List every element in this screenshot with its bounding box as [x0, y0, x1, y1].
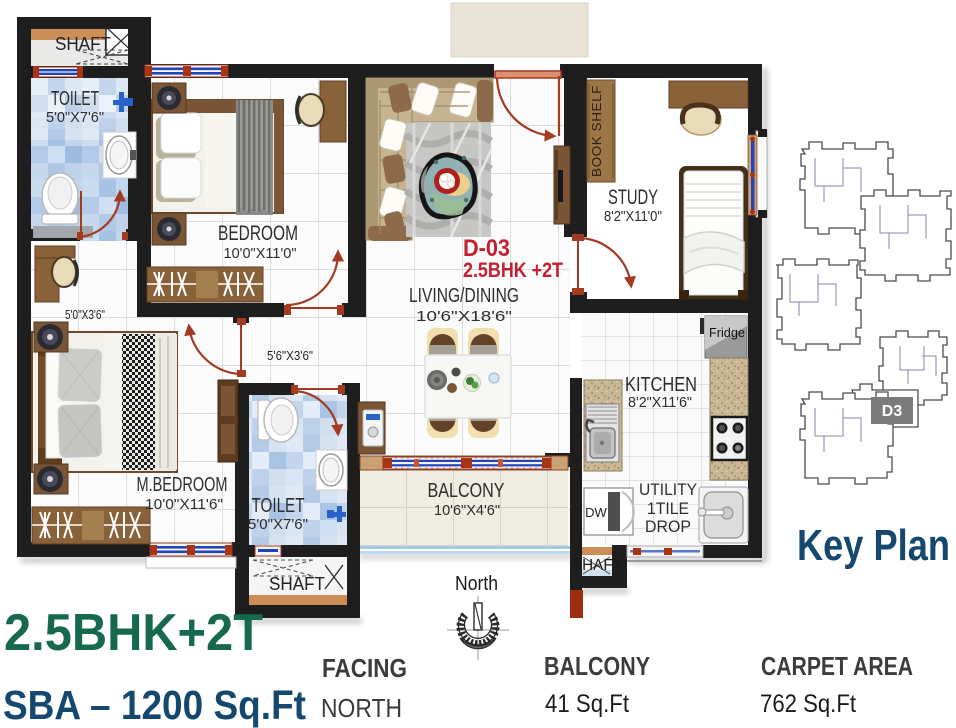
svg-text:2.5BHK +2T: 2.5BHK +2T — [463, 259, 563, 282]
svg-text:8'2"X11'6": 8'2"X11'6" — [628, 394, 692, 411]
svg-text:CARPET AREA: CARPET AREA — [761, 651, 913, 681]
svg-text:2.5BHK+2T: 2.5BHK+2T — [4, 604, 263, 662]
svg-text:STUDY: STUDY — [608, 186, 658, 209]
svg-text:UTILITY: UTILITY — [639, 480, 697, 499]
svg-text:41 Sq.Ft: 41 Sq.Ft — [545, 690, 629, 718]
svg-text:BEDROOM: BEDROOM — [218, 222, 298, 245]
svg-text:DW: DW — [585, 505, 607, 520]
svg-text:SHAFT: SHAFT — [572, 557, 622, 574]
svg-text:10'6"X4'6": 10'6"X4'6" — [434, 502, 500, 519]
svg-text:Fridge: Fridge — [709, 325, 745, 340]
svg-text:5'0"X7'6": 5'0"X7'6" — [46, 109, 104, 126]
svg-text:5'6"X3'6": 5'6"X3'6" — [267, 348, 313, 363]
svg-text:5'0"X3'6": 5'0"X3'6" — [65, 307, 105, 322]
svg-text:10'6"X18'6": 10'6"X18'6" — [416, 308, 512, 325]
svg-text:KITCHEN: KITCHEN — [625, 374, 697, 396]
svg-text:SBA – 1200 Sq.Ft: SBA – 1200 Sq.Ft — [3, 682, 306, 728]
svg-text:BALCONY: BALCONY — [544, 651, 650, 681]
svg-text:DROP: DROP — [645, 517, 691, 536]
svg-text:M.BEDROOM: M.BEDROOM — [137, 474, 228, 496]
svg-text:D-03: D-03 — [463, 235, 510, 262]
svg-text:North: North — [455, 573, 498, 595]
svg-text:NORTH: NORTH — [321, 693, 402, 723]
svg-text:10'0"X11'6": 10'0"X11'6" — [145, 496, 223, 513]
svg-text:TOILET: TOILET — [252, 495, 305, 517]
svg-text:BALCONY: BALCONY — [428, 480, 505, 502]
svg-text:TOILET: TOILET — [51, 88, 99, 110]
svg-text:LIVING/DINING: LIVING/DINING — [409, 285, 519, 307]
svg-text:762 Sq.Ft: 762 Sq.Ft — [760, 690, 856, 718]
svg-text:D3: D3 — [882, 403, 903, 420]
svg-text:1TILE: 1TILE — [647, 499, 689, 518]
svg-text:BOOK SHELF: BOOK SHELF — [589, 85, 604, 177]
svg-text:10'0"X11'0": 10'0"X11'0" — [224, 245, 297, 262]
svg-text:Key Plan: Key Plan — [797, 521, 950, 570]
svg-text:SHAFT: SHAFT — [269, 574, 325, 594]
svg-text:FACING: FACING — [322, 653, 407, 683]
svg-text:SHAFT: SHAFT — [55, 34, 111, 54]
svg-text:8'2"X11'0": 8'2"X11'0" — [604, 208, 662, 225]
svg-text:5'0"X7'6": 5'0"X7'6" — [248, 516, 308, 533]
